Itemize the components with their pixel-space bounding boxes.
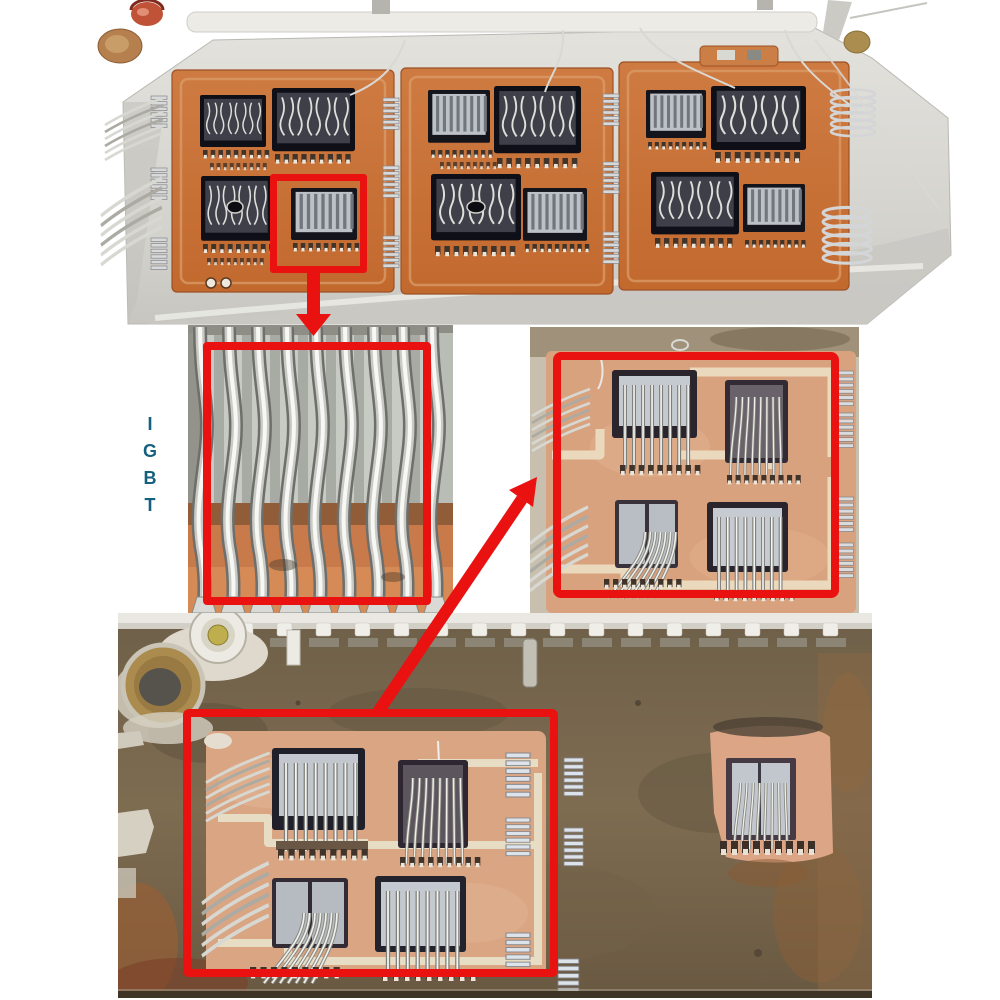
highlight-box-substrate-closeup <box>553 352 839 598</box>
chip <box>651 172 739 234</box>
standoff <box>190 613 246 663</box>
highlight-box-wire-closeup <box>203 342 431 605</box>
wire-coil-right <box>823 207 871 263</box>
igbt-label: IGBT <box>139 414 161 522</box>
white-tab <box>287 630 300 665</box>
top-module-photo <box>95 0 975 332</box>
substrate-2 <box>401 68 613 294</box>
chip <box>743 184 805 232</box>
chip <box>646 90 706 138</box>
chip <box>428 90 490 143</box>
chip <box>711 86 806 150</box>
substrate-3 <box>619 46 849 290</box>
highlight-box-bottom <box>183 709 558 977</box>
terminal-pad <box>700 46 778 66</box>
hanging-pin <box>523 639 537 687</box>
substrate-hole <box>221 278 231 288</box>
mounting-hole-brass <box>844 31 870 53</box>
chip <box>523 188 587 241</box>
chip <box>200 95 266 147</box>
chip <box>494 86 581 153</box>
substrate-hole <box>206 278 216 288</box>
figure-canvas: IGBT <box>0 0 1000 1000</box>
highlight-box-top <box>270 174 367 273</box>
housing-tab <box>372 0 390 14</box>
chip <box>272 88 355 151</box>
housing-tab <box>757 0 773 10</box>
